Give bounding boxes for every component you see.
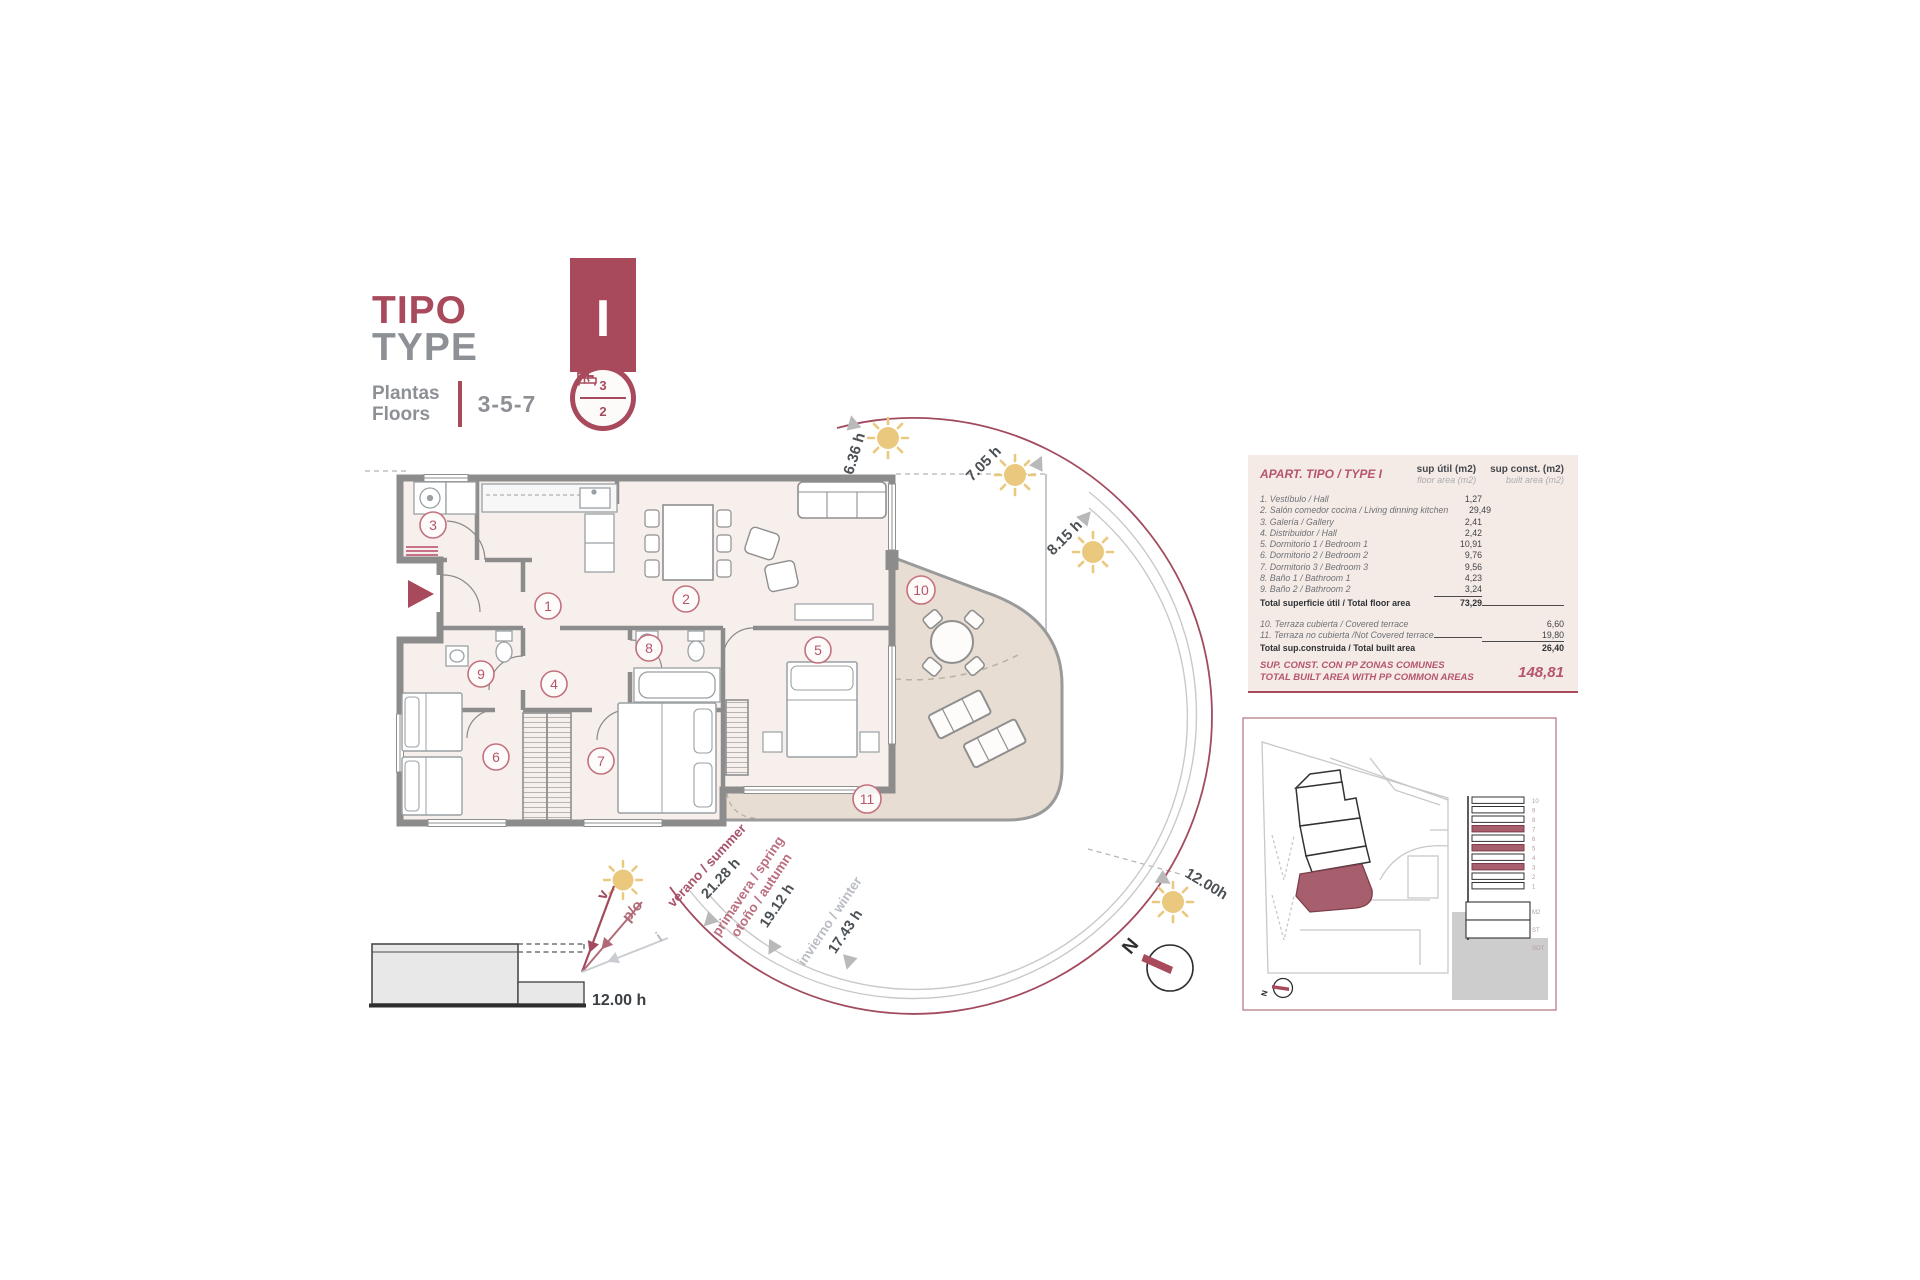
row-label: 5. Dormitorio 1 / Bedroom 1 [1260, 539, 1434, 550]
room-circle: 11 [853, 785, 881, 813]
spacer-cell [1482, 605, 1564, 606]
row-label: 8. Baño 1 / Bathroom 1 [1260, 573, 1434, 584]
room-number: 7 [597, 753, 605, 769]
ray-arrow [584, 940, 599, 955]
floor-plan: 1 2 3 4 5 6 7 8 9 10 11 [397, 475, 1063, 827]
built-area-column-header: sup const. (m2) built area (m2) [1490, 464, 1564, 485]
page-title-es: TIPO [372, 292, 536, 329]
row-label: 10. Terraza cubierta / Covered terrace [1260, 619, 1434, 630]
table-row: 8. Baño 1 / Bathroom 14,23 [1260, 573, 1564, 584]
row-floor-value: 4,23 [1434, 573, 1482, 584]
sun-icon [604, 861, 642, 899]
section-noon-label: 12.00 h [592, 992, 646, 1009]
row-floor-value: 29,49 [1448, 505, 1491, 516]
pillar [886, 550, 899, 570]
plan-sheet: 6.36 h 7.05 h 8.15 h 12.00h verano / sum… [0, 0, 1920, 1280]
room-number: 10 [913, 582, 929, 598]
site-panel: 10 9 8 7 6 5 4 3 2 1 M2 ST SOT N [1243, 718, 1556, 1010]
ray-arrow [605, 952, 620, 967]
table-row: 6. Dormitorio 2 / Bedroom 29,76 [1260, 550, 1564, 561]
area-table-rows: 1. Vestíbulo / Hall1,27 2. Salón comedor… [1260, 494, 1564, 655]
row-label: 6. Dormitorio 2 / Bedroom 2 [1260, 550, 1434, 561]
bedrooms-row: 3 [599, 373, 606, 397]
floor-label: SOT [1532, 946, 1545, 952]
room-number: 1 [544, 598, 552, 614]
row-label: 2. Salón comedor cocina / Living dinning… [1260, 505, 1448, 516]
floors-label-en: Floors [372, 404, 440, 425]
shower-icon [575, 370, 599, 386]
badge-circle: 3 2 [570, 365, 636, 431]
type-ribbon: I [570, 258, 636, 372]
room-number: 3 [429, 517, 437, 533]
room-number: 2 [682, 591, 690, 607]
compass-n-label: N [1118, 934, 1143, 958]
sun-icon [1073, 532, 1113, 572]
room-circle: 5 [805, 637, 831, 663]
arc-arrow [839, 954, 857, 971]
row-label: 4. Distribuidor / Hall [1260, 528, 1434, 539]
floors-divider [458, 381, 462, 427]
footer-total-value: 148,81 [1518, 664, 1564, 681]
room-number: 9 [477, 666, 485, 682]
sun-icon [995, 455, 1035, 495]
floors-label: Plantas Floors [372, 383, 440, 425]
floors-row: Plantas Floors 3-5-7 [372, 381, 536, 427]
table-row: 5. Dormitorio 1 / Bedroom 110,91 [1260, 539, 1564, 550]
sun-icon [1153, 882, 1193, 922]
table-row: 7. Dormitorio 3 / Bedroom 39,56 [1260, 562, 1564, 573]
dashed-line [1088, 849, 1180, 874]
area-table: APART. TIPO / TYPE I sup útil (m2) floor… [1248, 455, 1578, 663]
row-floor-value: 3,24 [1434, 584, 1482, 595]
floor-label: 10 [1532, 799, 1539, 805]
floor-label: M2 [1532, 910, 1541, 916]
total-floor-row: Total superficie útil / Total floor area… [1260, 596, 1564, 610]
season-winter-label: invierno / winter 17.43 h [794, 873, 881, 979]
floor-area-header-es: sup útil (m2) [1417, 464, 1476, 475]
early-hour-label: 7.05 h [963, 443, 1005, 485]
built-area-header-es: sup const. (m2) [1490, 464, 1564, 475]
sunrise-hour-label: 6.36 h [840, 431, 869, 477]
laundry-furniture [414, 482, 476, 514]
built-area-header-en: built area (m2) [1490, 475, 1564, 485]
summer-ray-label: v [594, 887, 613, 903]
highlighted-floor [1472, 845, 1524, 851]
bedrooms-count: 3 [599, 378, 606, 393]
section-diagram: v p/o i 12.00 h [369, 861, 668, 1009]
floor-label: ST [1532, 928, 1540, 934]
row-built-value: 19,80 [1482, 630, 1564, 642]
bathrooms-count: 2 [599, 404, 606, 419]
room-circle: 6 [483, 744, 509, 770]
row-floor-value: 9,76 [1434, 550, 1482, 561]
arc-arrow [762, 939, 782, 959]
row-built-value: 6,60 [1482, 619, 1564, 630]
row-label: 1. Vestíbulo / Hall [1260, 494, 1434, 505]
room-circle: 9 [468, 661, 494, 687]
bedroom3-furniture [618, 703, 716, 813]
arc-arrow [1029, 453, 1049, 472]
table-row: 1. Vestíbulo / Hall1,27 [1260, 494, 1564, 505]
footer-line-en: TOTAL BUILT AREA WITH PP COMMON AREAS [1260, 672, 1474, 684]
row-label: 11. Terraza no cubierta /Not Covered ter… [1260, 630, 1434, 641]
room-circle: 10 [907, 576, 935, 604]
compass: N [1118, 934, 1193, 991]
spacer-cell [1434, 637, 1482, 638]
room-circle: 1 [535, 593, 561, 619]
type-badge: I 3 2 [570, 258, 636, 372]
floor-area-header-en: floor area (m2) [1417, 475, 1476, 485]
highlighted-floor [1472, 864, 1524, 870]
common-areas-footer: SUP. CONST. CON PP ZONAS COMUNES TOTAL B… [1248, 653, 1578, 693]
floors-value: 3-5-7 [478, 391, 537, 418]
total-floor-value: 73,29 [1434, 596, 1482, 610]
row-floor-value: 9,56 [1434, 562, 1482, 573]
room-circle: 4 [541, 671, 567, 697]
page-title-en: TYPE [372, 329, 536, 366]
bathrooms-row: 2 [599, 399, 606, 423]
room-circle: 3 [420, 512, 446, 538]
footer-line-es: SUP. CONST. CON PP ZONAS COMUNES [1260, 660, 1474, 672]
table-row: 3. Galería / Gallery2,41 [1260, 517, 1564, 528]
room-number: 8 [645, 640, 653, 656]
arc-arrow [844, 414, 862, 431]
row-floor-value: 2,41 [1434, 517, 1482, 528]
table-row: 10. Terraza cubierta / Covered terrace6,… [1260, 619, 1564, 630]
dining-furniture [645, 505, 731, 580]
table-row: 11. Terraza no cubierta /Not Covered ter… [1260, 630, 1564, 642]
highlighted-floor [1472, 826, 1524, 832]
row-label: 7. Dormitorio 3 / Bedroom 3 [1260, 562, 1434, 573]
spring-autumn-ray-label: p/o [619, 897, 646, 925]
floor-area-column-header: sup útil (m2) floor area (m2) [1417, 464, 1476, 485]
table-row: 9. Baño 2 / Bathroom 23,24 [1260, 584, 1564, 595]
row-floor-value: 2,42 [1434, 528, 1482, 539]
room-number: 11 [860, 791, 875, 807]
type-letter: I [596, 285, 610, 345]
room-circle: 8 [636, 635, 662, 661]
area-table-title: APART. TIPO / TYPE I [1260, 464, 1382, 485]
row-label: 9. Baño 2 / Bathroom 2 [1260, 584, 1434, 595]
dashed-extension [518, 944, 584, 952]
room-circle: 2 [673, 586, 699, 612]
sheet-graphic: 6.36 h 7.05 h 8.15 h 12.00h verano / sum… [0, 0, 1920, 1280]
room-circle: 7 [588, 748, 614, 774]
room-number: 6 [492, 749, 500, 765]
title-block: TIPO TYPE Plantas Floors 3-5-7 [372, 292, 536, 427]
entrance-arrow [408, 580, 434, 608]
noon-hour-label: 12.00h [1182, 865, 1231, 904]
total-floor-label: Total superficie útil / Total floor area [1260, 597, 1434, 610]
row-label: 3. Galería / Gallery [1260, 517, 1434, 528]
sun-icon [868, 418, 908, 458]
row-floor-value: 1,27 [1434, 494, 1482, 505]
floors-label-es: Plantas [372, 383, 440, 404]
room-number: 5 [814, 642, 822, 658]
table-row: 4. Distribuidor / Hall2,42 [1260, 528, 1564, 539]
table-row: 2. Salón comedor cocina / Living dinning… [1260, 505, 1564, 516]
area-table-header: APART. TIPO / TYPE I sup útil (m2) floor… [1260, 464, 1564, 485]
row-floor-value: 10,91 [1434, 539, 1482, 550]
room-number: 4 [550, 676, 558, 692]
